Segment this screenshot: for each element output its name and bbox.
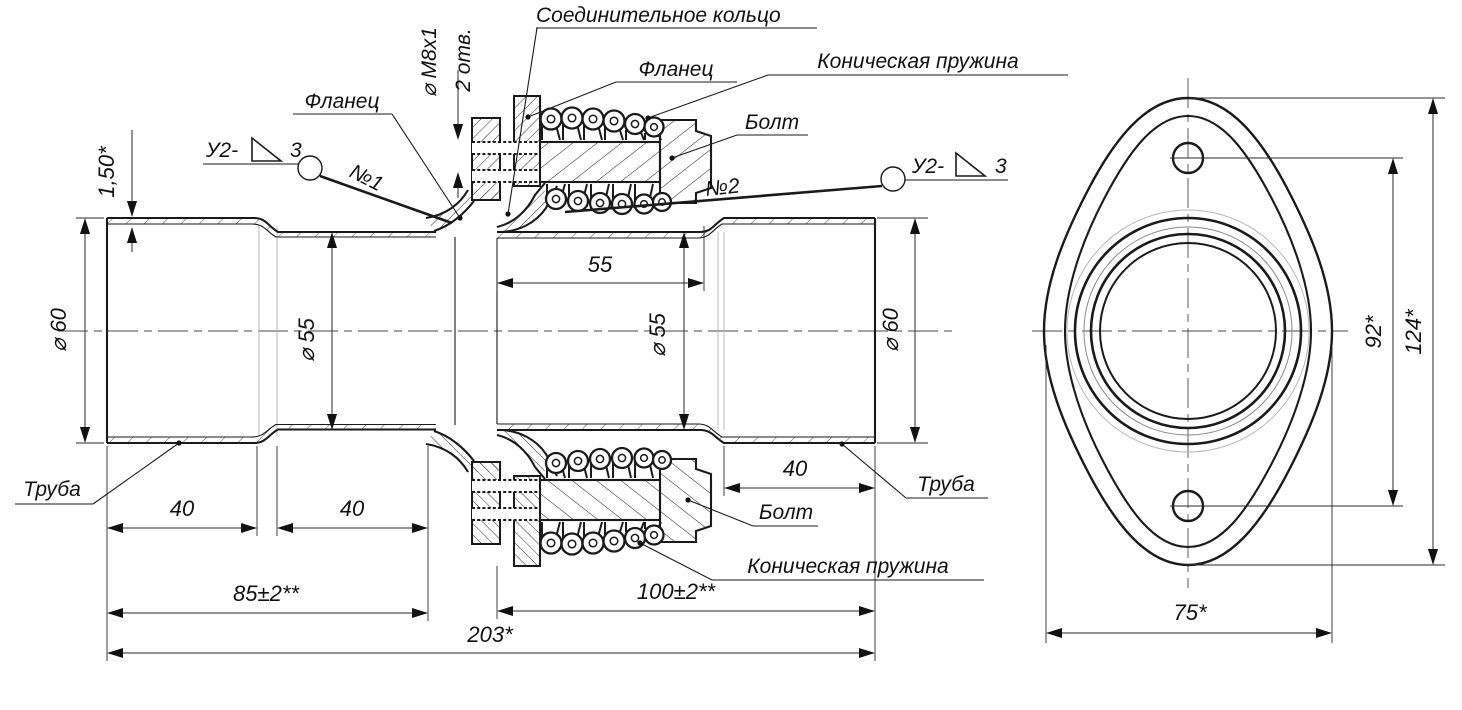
leader-line <box>93 443 179 504</box>
weld-num-text: 3 <box>995 155 1007 178</box>
label-conical-spring-top: Коническая пружина <box>817 50 1018 73</box>
dim-40-c: 40 <box>783 456 808 481</box>
dim-dia55-left: ⌀ 55 <box>294 317 319 362</box>
pipe-left <box>107 218 455 443</box>
leader-line <box>842 444 906 498</box>
weld-tag-no1: №1 <box>346 160 387 196</box>
front-view: 92* 124* 75* <box>1032 78 1445 643</box>
leader-dot <box>505 211 510 216</box>
leader-dot <box>669 155 674 160</box>
dim-40-a: 40 <box>170 496 195 521</box>
leader-dot <box>645 115 650 120</box>
label-flange-left: Фланец <box>305 90 380 113</box>
assembly-bottom <box>426 430 711 566</box>
dim-dia55-right: ⌀ 55 <box>645 312 670 357</box>
label-thread-holes: 2 отв. <box>452 28 475 92</box>
leader-dot <box>839 441 844 446</box>
weld-triangle-icon <box>956 153 985 176</box>
pipe-wall <box>497 424 875 443</box>
leader-line <box>640 543 712 580</box>
dim-55: 55 <box>588 252 613 277</box>
weld-triangle-icon <box>252 138 281 161</box>
dim-dia60-right: ⌀ 60 <box>878 307 903 352</box>
dim-85: 85±2** <box>233 581 300 606</box>
label-pipe-left: Труба <box>23 478 81 501</box>
weld-tag-no2: №2 <box>704 174 741 201</box>
dim-dia60-left: ⌀ 60 <box>46 307 71 352</box>
label-thread-dia: ⌀ M8x1 <box>418 27 441 97</box>
leader-dot <box>525 114 530 119</box>
weld-all-around-icon <box>298 156 322 180</box>
weld-symbol-left: У2- 3 №1 <box>203 138 452 223</box>
dim-40-b: 40 <box>340 496 365 521</box>
weld-all-around-icon <box>881 167 905 191</box>
pipe-right <box>497 218 875 443</box>
dim-wall-thickness: 1,50* <box>94 145 119 198</box>
leader-dot <box>637 540 642 545</box>
leader-line <box>392 114 460 218</box>
dim-203: 203* <box>466 622 514 647</box>
dim-75: 75* <box>1173 600 1207 625</box>
label-flange-top: Фланец <box>639 58 714 81</box>
leader-dot <box>685 497 690 502</box>
leader-dot <box>457 215 462 220</box>
weld-code-text: У2- <box>205 139 238 162</box>
drawing-sheet: 1,50* ⌀ 60 ⌀ 55 55 ⌀ 55 ⌀ 60 <box>0 0 1462 710</box>
dim-100: 100±2** <box>637 579 717 604</box>
label-bolt-bottom: Болт <box>759 501 813 524</box>
pipe-wall <box>497 218 875 238</box>
weld-num-text: 3 <box>290 139 302 162</box>
weld-code-text: У2- <box>911 155 944 178</box>
weld-leader <box>320 176 452 223</box>
dim-92: 92* <box>1361 314 1386 348</box>
label-bolt-top: Болт <box>745 111 799 134</box>
label-conical-spring-bottom: Коническая пружина <box>747 555 948 578</box>
side-view: 1,50* ⌀ 60 ⌀ 55 55 ⌀ 55 ⌀ 60 <box>15 4 1068 661</box>
dim-124: 124* <box>1401 308 1426 355</box>
leader-dot <box>176 440 181 445</box>
technical-drawing: 1,50* ⌀ 60 ⌀ 55 55 ⌀ 55 ⌀ 60 <box>0 0 1462 710</box>
label-pipe-right: Труба <box>917 473 975 496</box>
dimensions: 1,50* ⌀ 60 ⌀ 55 55 ⌀ 55 ⌀ 60 <box>46 130 928 661</box>
label-connecting-ring: Соединительное кольцо <box>536 4 781 27</box>
